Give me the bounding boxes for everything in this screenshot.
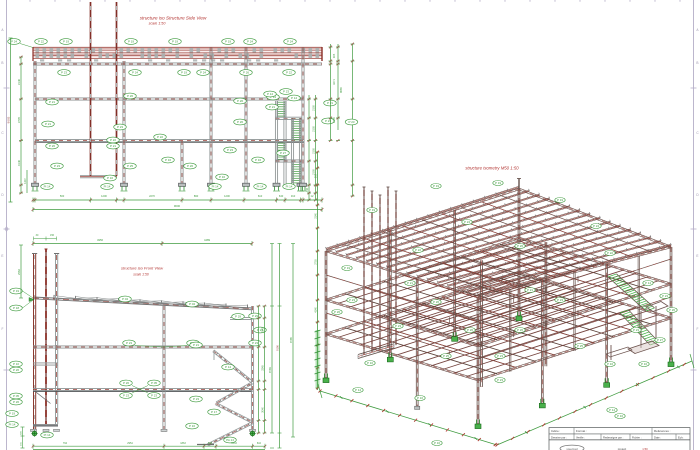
svg-text:Pl 14: Pl 14 <box>257 185 264 189</box>
svg-text:3705: 3705 <box>315 259 318 265</box>
svg-text:P 23: P 23 <box>252 341 258 345</box>
svg-text:structure iso Structure Side V: structure iso Structure Side View <box>140 15 207 20</box>
svg-text:P 16: P 16 <box>641 362 647 366</box>
svg-text:2105: 2105 <box>332 117 336 123</box>
svg-text:Pl 14: Pl 14 <box>212 185 219 189</box>
svg-text:P 21: P 21 <box>193 343 199 347</box>
svg-text:Pl 14: Pl 14 <box>9 423 16 427</box>
svg-text:3040: 3040 <box>262 407 265 413</box>
svg-text:Verifie :: Verifie : <box>576 435 585 439</box>
svg-text:3140: 3140 <box>17 78 21 85</box>
svg-text:8783: 8783 <box>268 367 272 373</box>
svg-text:P 23: P 23 <box>123 394 129 398</box>
svg-text:scale 1:50: scale 1:50 <box>149 21 167 25</box>
svg-text:P 19: P 19 <box>557 198 563 202</box>
svg-text:2105: 2105 <box>312 148 316 154</box>
svg-text:P 05: P 05 <box>151 381 157 385</box>
svg-text:P 24: P 24 <box>200 71 206 75</box>
svg-text:P 16: P 16 <box>417 396 423 400</box>
svg-text:P 21: P 21 <box>527 288 533 292</box>
svg-text:P 19: P 19 <box>344 266 350 270</box>
svg-text:P 16: P 16 <box>165 158 171 162</box>
svg-text:F: F <box>2 327 4 331</box>
svg-text:Redessigne par :: Redessigne par : <box>603 435 624 439</box>
svg-text:P 22: P 22 <box>38 40 44 44</box>
svg-text:E: E <box>1 254 3 258</box>
svg-text:4956: 4956 <box>97 238 103 242</box>
svg-text:Fichier :: Fichier : <box>632 435 642 439</box>
svg-text:2105: 2105 <box>312 105 316 111</box>
svg-text:3140: 3140 <box>315 213 318 219</box>
svg-text:P 23: P 23 <box>349 298 355 302</box>
svg-text:Pl 14: Pl 14 <box>44 185 51 189</box>
svg-text:4140: 4140 <box>315 307 318 313</box>
svg-text:P 21: P 21 <box>110 144 116 148</box>
svg-text:P 16: P 16 <box>607 362 613 366</box>
svg-text:P 23: P 23 <box>227 148 233 152</box>
svg-text:P 24: P 24 <box>287 40 293 44</box>
svg-text:1447: 1447 <box>23 178 27 184</box>
svg-text:P 05: P 05 <box>13 394 19 398</box>
svg-text:P 21: P 21 <box>407 281 413 285</box>
svg-text:P 21: P 21 <box>45 122 51 126</box>
svg-text:P 25: P 25 <box>577 344 583 348</box>
svg-text:P 19: P 19 <box>13 289 19 293</box>
svg-text:Indice:: Indice: <box>551 429 560 433</box>
svg-text:P 17: P 17 <box>211 410 217 414</box>
svg-text:P 16: P 16 <box>434 441 440 445</box>
svg-text:P 24: P 24 <box>11 40 17 44</box>
svg-text:P 26: P 26 <box>187 164 193 168</box>
svg-text:P 19: P 19 <box>172 40 178 44</box>
svg-text:2954: 2954 <box>127 442 133 445</box>
svg-text:P 21: P 21 <box>269 105 275 109</box>
svg-text:305: 305 <box>332 53 336 58</box>
svg-text:1863: 1863 <box>180 442 186 445</box>
svg-text:E: E <box>696 254 698 258</box>
svg-text:P 04: P 04 <box>122 297 128 301</box>
svg-text:P 18: P 18 <box>13 306 19 310</box>
svg-text:500: 500 <box>60 194 65 198</box>
svg-text:P 19: P 19 <box>128 40 134 44</box>
svg-text:P 19: P 19 <box>9 412 15 416</box>
svg-text:P 23: P 23 <box>283 90 289 94</box>
svg-text:P 16: P 16 <box>189 424 195 428</box>
svg-text:448: 448 <box>306 187 309 192</box>
svg-text:9600: 9600 <box>174 204 181 208</box>
svg-text:P 26: P 26 <box>467 328 473 332</box>
svg-text:544: 544 <box>208 442 213 445</box>
svg-text:P 23: P 23 <box>557 298 563 302</box>
svg-text:P 26: P 26 <box>123 381 129 385</box>
svg-text:P 23: P 23 <box>633 328 639 332</box>
svg-text:P 26: P 26 <box>237 120 243 124</box>
svg-text:P 14: P 14 <box>609 408 615 412</box>
svg-text:9196: 9196 <box>276 345 280 351</box>
svg-text:P 23: P 23 <box>126 341 132 345</box>
svg-text:310: 310 <box>291 194 296 198</box>
svg-text:610: 610 <box>257 442 262 445</box>
svg-text:156: 156 <box>50 234 55 237</box>
svg-text:890: 890 <box>194 194 199 198</box>
svg-text:P 23: P 23 <box>395 324 401 328</box>
svg-text:P 26: P 26 <box>517 244 523 248</box>
svg-text:B: B <box>696 61 698 65</box>
svg-text:P 19: P 19 <box>63 40 69 44</box>
svg-text:1200: 1200 <box>224 194 230 198</box>
svg-text:P 24: P 24 <box>464 220 470 224</box>
svg-text:P 24: P 24 <box>593 224 599 228</box>
svg-text:P 14: P 14 <box>645 281 651 285</box>
svg-text:P 23: P 23 <box>117 125 123 129</box>
svg-text:P 23: P 23 <box>497 378 503 382</box>
svg-text:P 23: P 23 <box>497 354 503 358</box>
svg-text:P 22: P 22 <box>415 248 421 252</box>
svg-text:P 26: P 26 <box>127 94 133 98</box>
svg-text:structure isometry M50 1:50: structure isometry M50 1:50 <box>465 166 519 171</box>
svg-text:P 23: P 23 <box>193 397 199 401</box>
svg-text:References :: References : <box>654 429 671 433</box>
svg-text:P 14: P 14 <box>267 92 273 96</box>
svg-text:scale 1:50: scale 1:50 <box>133 273 149 277</box>
svg-text:P 26: P 26 <box>13 368 19 372</box>
svg-text:P 22: P 22 <box>607 251 613 255</box>
svg-text:B: B <box>1 61 3 65</box>
svg-text:P 26: P 26 <box>13 400 19 404</box>
svg-text:4140: 4140 <box>17 159 21 166</box>
svg-text:P 19: P 19 <box>495 181 501 185</box>
svg-text:P 14: P 14 <box>225 365 231 369</box>
svg-text:Dessine par :: Dessine par : <box>551 435 567 439</box>
svg-text:640: 640 <box>279 194 284 198</box>
svg-text:P 22: P 22 <box>157 135 163 139</box>
svg-text:794: 794 <box>63 442 68 445</box>
svg-text:P 19: P 19 <box>369 208 375 212</box>
svg-text:Ech:: Ech: <box>678 435 684 439</box>
svg-text:P 26: P 26 <box>243 71 249 75</box>
svg-text:P 16: P 16 <box>617 414 623 418</box>
svg-text:P 27: P 27 <box>280 151 286 155</box>
svg-text:P 19: P 19 <box>181 71 187 75</box>
svg-text:2562: 2562 <box>17 269 21 275</box>
svg-text:P 24: P 24 <box>132 71 138 75</box>
svg-text:structure iso Front View: structure iso Front View <box>121 266 164 271</box>
svg-text:8665: 8665 <box>339 87 343 93</box>
svg-text:2270: 2270 <box>149 194 155 198</box>
svg-text:P 10: P 10 <box>13 362 19 366</box>
svg-text:P 26: P 26 <box>517 328 523 332</box>
svg-text:P 19: P 19 <box>225 40 231 44</box>
svg-text:P 26: P 26 <box>669 308 675 312</box>
svg-text:P 23: P 23 <box>348 120 354 124</box>
svg-text:P 14: P 14 <box>355 388 361 392</box>
svg-text:8785: 8785 <box>289 337 293 343</box>
svg-text:P 26: P 26 <box>237 99 243 103</box>
svg-text:P 23: P 23 <box>54 164 60 168</box>
svg-text:Format :: Format : <box>576 429 587 433</box>
svg-text:P 16: P 16 <box>255 158 261 162</box>
svg-text:3271: 3271 <box>332 79 336 85</box>
svg-text:3345: 3345 <box>262 365 265 371</box>
svg-text:Date :: Date : <box>654 435 661 439</box>
svg-text:P 22: P 22 <box>286 71 292 75</box>
svg-text:P 29: P 29 <box>252 314 258 318</box>
svg-text:P 25: P 25 <box>443 354 449 358</box>
svg-text:610: 610 <box>258 194 263 198</box>
svg-text:P 16: P 16 <box>219 175 225 179</box>
svg-text:P 23: P 23 <box>61 71 67 75</box>
svg-text:3143: 3143 <box>262 327 265 333</box>
svg-text:P 26: P 26 <box>433 300 439 304</box>
svg-text:P 04: P 04 <box>189 302 195 306</box>
svg-text:P 27: P 27 <box>657 338 663 342</box>
svg-text:F: F <box>697 327 699 331</box>
svg-text:8665: 8665 <box>7 116 11 123</box>
svg-text:P 26: P 26 <box>334 310 340 314</box>
svg-text:4489: 4489 <box>204 238 210 242</box>
svg-text:1633: 1633 <box>231 442 237 445</box>
svg-text:P 16: P 16 <box>107 176 113 180</box>
svg-text:P 21: P 21 <box>49 100 55 104</box>
svg-text:Pl 14: Pl 14 <box>104 185 111 189</box>
svg-text:P 14: P 14 <box>291 96 297 100</box>
svg-text:P 23: P 23 <box>151 394 157 398</box>
svg-text:3705: 3705 <box>17 116 21 123</box>
svg-text:P 25: P 25 <box>127 164 133 168</box>
svg-text:P 24: P 24 <box>247 40 253 44</box>
svg-text:Pl 14: Pl 14 <box>44 433 51 437</box>
svg-text:P 23: P 23 <box>662 294 668 298</box>
svg-text:P 16: P 16 <box>367 361 373 365</box>
svg-text:P 19: P 19 <box>433 184 439 188</box>
svg-text:2105: 2105 <box>312 126 316 132</box>
svg-text:P 29: P 29 <box>235 315 241 319</box>
svg-text:Pl 14: Pl 14 <box>286 185 293 189</box>
svg-text:1200: 1200 <box>101 194 107 198</box>
svg-text:305: 305 <box>315 173 318 178</box>
svg-text:P 22: P 22 <box>110 138 116 142</box>
svg-text:P 26: P 26 <box>49 144 55 148</box>
